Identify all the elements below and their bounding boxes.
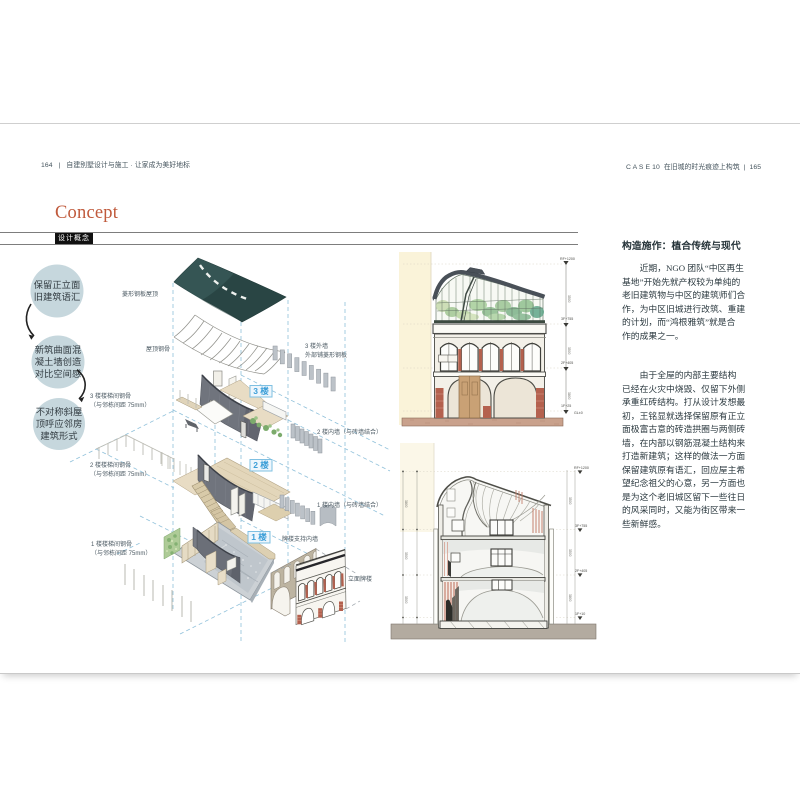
svg-text:新筑曲面混: 新筑曲面混 [35, 344, 82, 355]
svg-text:GL±0: GL±0 [574, 411, 583, 415]
svg-text:1 楼: 1 楼 [251, 532, 267, 542]
svg-text:屋顶钢骨: 屋顶钢骨 [146, 345, 170, 353]
svg-text:3500: 3500 [568, 497, 572, 505]
svg-text:3500: 3500 [567, 347, 571, 355]
svg-text:3800: 3800 [568, 594, 572, 602]
svg-text:旧建筑语汇: 旧建筑语汇 [34, 291, 81, 302]
svg-text:3800: 3800 [567, 392, 571, 400]
svg-text:牌楼支持内墙: 牌楼支持内墙 [282, 535, 318, 543]
svg-text:RF+1200: RF+1200 [560, 257, 575, 261]
svg-text:对比空间感: 对比空间感 [35, 368, 82, 379]
svg-text:3500: 3500 [404, 596, 408, 604]
svg-text:3500: 3500 [404, 552, 408, 560]
svg-text:立面牌楼: 立面牌楼 [348, 575, 372, 583]
svg-text:2F+405: 2F+405 [561, 361, 573, 365]
svg-text:建筑形式: 建筑形式 [40, 430, 77, 441]
svg-text:1 楼楼梯间钢骨: 1 楼楼梯间钢骨 [91, 540, 132, 548]
svg-text:外部铺菱形钢板: 外部铺菱形钢板 [305, 351, 347, 359]
svg-text:保留正立面: 保留正立面 [34, 279, 81, 290]
svg-text:3 楼外墙: 3 楼外墙 [305, 342, 328, 350]
svg-text:2 楼内墙（与砖墙结合）: 2 楼内墙（与砖墙结合） [317, 428, 382, 436]
svg-text:3500: 3500 [568, 549, 572, 557]
svg-text:3F+755: 3F+755 [561, 317, 573, 321]
svg-text:3500: 3500 [567, 295, 571, 303]
svg-text:2 楼楼梯间钢骨: 2 楼楼梯间钢骨 [90, 461, 131, 469]
svg-text:1F+25: 1F+25 [561, 404, 571, 408]
svg-text:2F+405: 2F+405 [575, 569, 587, 573]
svg-text:3800: 3800 [404, 500, 408, 508]
svg-text:（与邻栋间距 75mm）: （与邻栋间距 75mm） [90, 401, 150, 409]
svg-text:3F+755: 3F+755 [575, 524, 587, 528]
svg-text:凝土墙创造: 凝土墙创造 [35, 356, 82, 367]
svg-text:不对称斜屋: 不对称斜屋 [36, 406, 83, 417]
svg-text:3 楼: 3 楼 [253, 386, 269, 396]
svg-text:RF+1200: RF+1200 [574, 466, 589, 470]
svg-text:1 楼内墙（与砖墙结合）: 1 楼内墙（与砖墙结合） [317, 501, 382, 509]
svg-text:1F+10: 1F+10 [575, 612, 585, 616]
svg-text:菱形钢板屋顶: 菱形钢板屋顶 [122, 290, 158, 298]
svg-text:3 楼楼梯间钢骨: 3 楼楼梯间钢骨 [90, 392, 131, 400]
svg-text:（与邻栋间距 75mm）: （与邻栋间距 75mm） [90, 470, 150, 478]
svg-text:（与邻栋间距 75mm）: （与邻栋间距 75mm） [91, 549, 151, 557]
svg-text:2 楼: 2 楼 [253, 460, 269, 470]
svg-text:顶呼应邻房: 顶呼应邻房 [36, 418, 83, 429]
